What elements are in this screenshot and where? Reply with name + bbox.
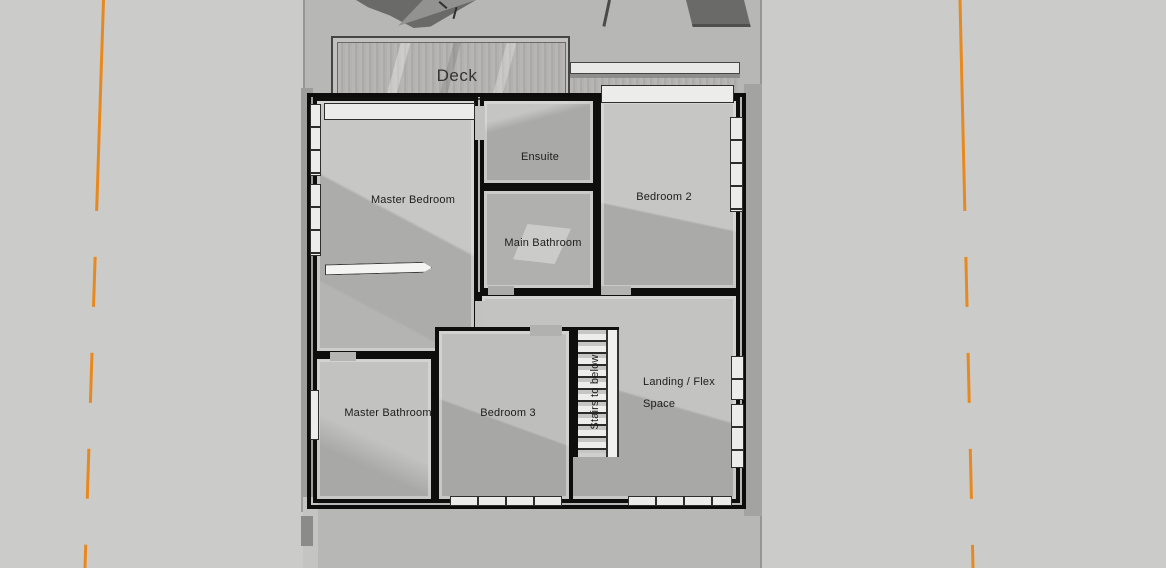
master-bedroom-deck-door-glass [324,103,475,120]
main-bathroom-door-opening [488,286,514,295]
room-bedroom-3 [435,327,573,503]
room-master-bedroom [313,97,478,355]
master-bedroom-window-left-1 [310,104,321,176]
master-bedroom-door-opening [475,301,485,327]
boundary-line-right [960,0,973,568]
room-ensuite [480,97,597,187]
master-bathroom-window-left [310,390,319,440]
stair-stringer [606,330,619,457]
bedroom-3-window-bottom [450,496,562,506]
stairwell [573,327,619,457]
bedroom-2-window-top [601,85,734,103]
floorplan-viewport: Deck Master Bedroom Ensuite Bedroom 2 Ma… [0,0,1166,568]
landing-window-bottom [628,496,732,506]
master-bathroom-door-opening [330,352,356,361]
landing-window-right-2 [731,404,744,468]
boundary-line-left [85,0,104,568]
bedroom-2-door-opening [601,286,631,295]
landing-window-right-1 [731,356,744,400]
master-bedroom-window-left-2 [310,184,321,256]
ensuite-door-opening [475,106,485,140]
bedroom-3-door-opening [530,325,562,336]
room-bedroom-2 [597,97,740,292]
floorplan-rooms-layer [311,96,742,506]
bedroom-2-window-right [730,117,743,212]
room-master-bathroom [313,355,435,503]
